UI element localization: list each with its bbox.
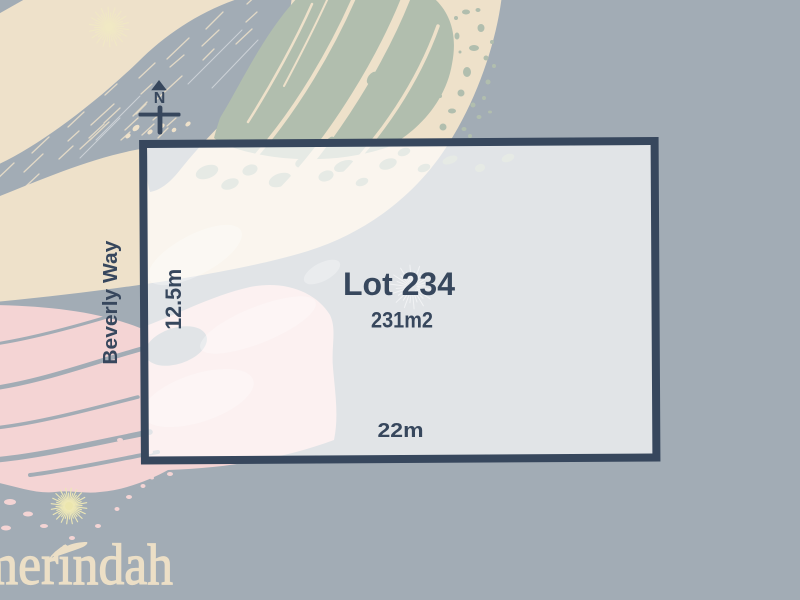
svg-text:22m: 22m — [378, 419, 424, 442]
svg-text:merindah: merindah — [0, 532, 173, 597]
svg-text:Beverly Way: Beverly Way — [100, 240, 122, 365]
svg-text:Lot 234: Lot 234 — [343, 266, 455, 302]
svg-text:231m2: 231m2 — [371, 308, 433, 333]
svg-text:N: N — [154, 90, 166, 107]
svg-text:12.5m: 12.5m — [161, 269, 186, 330]
